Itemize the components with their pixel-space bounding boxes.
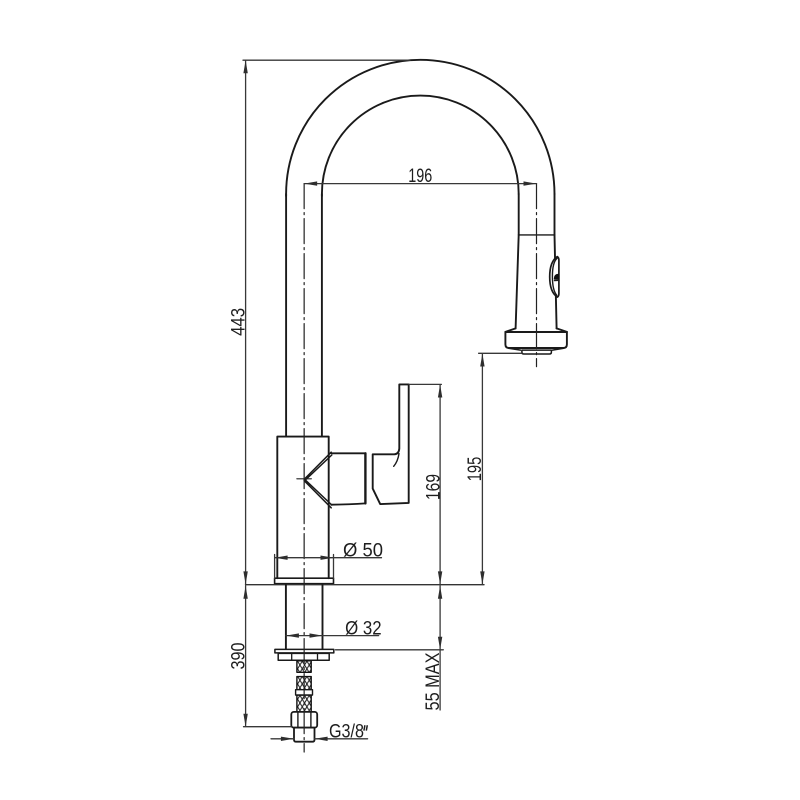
svg-text:169: 169 xyxy=(424,474,445,500)
svg-text:Ø 32: Ø 32 xyxy=(345,619,382,640)
svg-text:55 MAX: 55 MAX xyxy=(423,652,444,710)
svg-text:443: 443 xyxy=(228,308,249,336)
svg-text:195: 195 xyxy=(465,457,486,482)
svg-text:196: 196 xyxy=(408,166,432,187)
svg-text:Ø 50: Ø 50 xyxy=(343,540,383,561)
svg-text:390: 390 xyxy=(229,643,250,670)
svg-text:G3/8: G3/8 xyxy=(329,721,364,742)
